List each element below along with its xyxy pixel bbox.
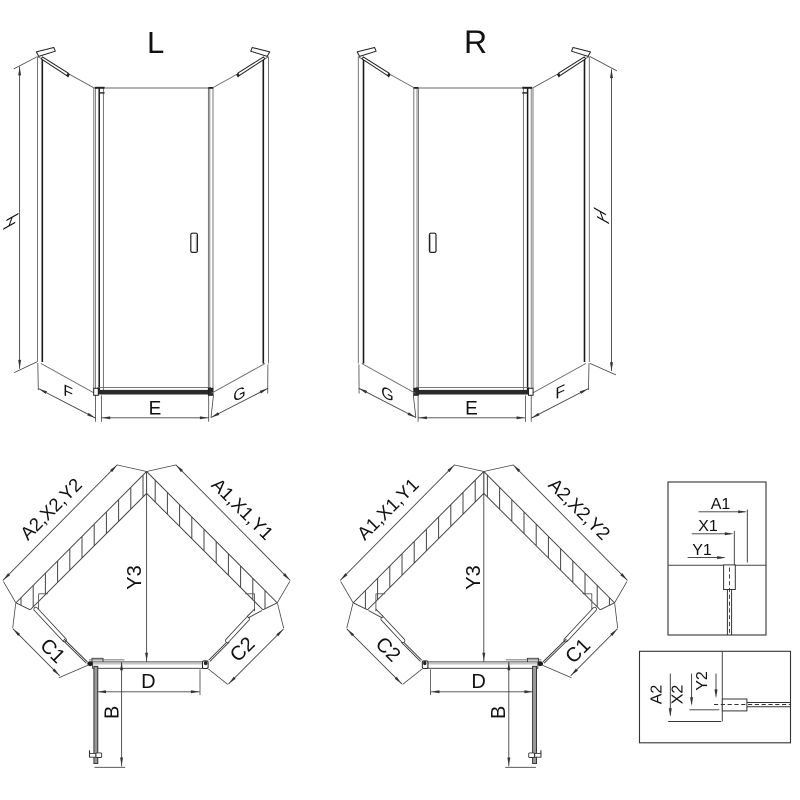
svg-text:D: D xyxy=(141,671,155,693)
svg-text:D: D xyxy=(471,671,485,693)
svg-text:A2: A2 xyxy=(649,685,666,705)
svg-text:R: R xyxy=(464,24,487,60)
svg-text:E: E xyxy=(149,399,162,420)
svg-text:Y1: Y1 xyxy=(692,542,712,559)
svg-text:B: B xyxy=(488,706,510,719)
svg-text:X2: X2 xyxy=(670,685,687,705)
svg-text:Y3: Y3 xyxy=(463,565,485,589)
svg-text:E: E xyxy=(465,399,478,420)
svg-text:Y2: Y2 xyxy=(694,671,711,691)
svg-text:B: B xyxy=(101,706,123,719)
svg-text:L: L xyxy=(147,25,164,60)
svg-text:Y3: Y3 xyxy=(124,565,146,589)
svg-text:A1: A1 xyxy=(711,496,731,513)
svg-text:X1: X1 xyxy=(698,518,718,535)
